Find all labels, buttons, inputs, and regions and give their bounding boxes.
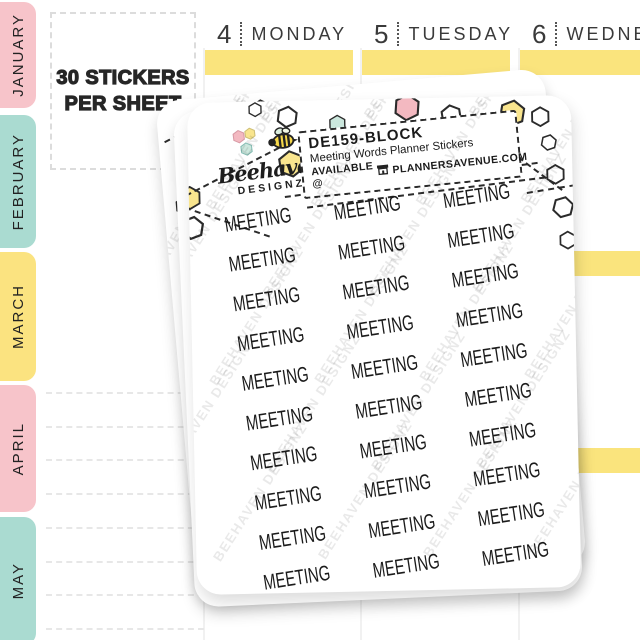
month-tab-label: JANUARY: [10, 13, 27, 97]
hexagon-icon: [540, 133, 558, 156]
ruled-line: [46, 594, 204, 596]
month-tab-may: MAY: [0, 517, 36, 640]
ruled-line: [46, 493, 204, 495]
day-header: 4MONDAY: [205, 18, 353, 50]
month-tab-label: MAY: [10, 562, 27, 599]
sticker-grid: MEETINGMEETINGMEETINGMEETINGMEETINGMEETI…: [201, 170, 572, 595]
ruled-line: [46, 628, 204, 630]
day-number: 5: [374, 19, 388, 50]
product-image: JANUARYFEBRUARYMARCHAPRILMAY 30 STICKERS…: [0, 0, 640, 640]
day-highlight-bar: [362, 50, 510, 75]
day-highlight-bar: [205, 50, 353, 75]
day-column-tuesday: 5TUESDAY: [362, 18, 510, 78]
day-name: TUESDAY: [408, 24, 513, 45]
day-header: 6WEDNESDAY: [520, 18, 640, 50]
month-tab-label: MARCH: [10, 284, 27, 349]
ruled-line: [46, 527, 204, 529]
storefront-icon: [376, 164, 390, 179]
hexagon-icon: [551, 195, 576, 224]
day-separator: [240, 22, 242, 46]
month-tab-january: JANUARY: [0, 2, 36, 108]
day-name: MONDAY: [251, 24, 347, 45]
ruled-line: [46, 561, 204, 563]
month-tab-label: FEBRUARY: [10, 133, 27, 230]
day-column-wednesday: 6WEDNESDAY: [520, 18, 640, 78]
day-separator: [555, 22, 557, 46]
day-number: 4: [217, 19, 231, 50]
month-tab-february: FEBRUARY: [0, 115, 36, 248]
ruled-line: [46, 426, 204, 428]
month-tab-label: APRIL: [10, 422, 27, 475]
month-tab-april: APRIL: [0, 385, 36, 512]
hexagon-icon: [529, 105, 552, 132]
month-tab-march: MARCH: [0, 252, 36, 381]
day-header: 5TUESDAY: [362, 18, 510, 50]
day-separator: [397, 22, 399, 46]
hexagon-icon: [247, 101, 263, 122]
day-number: 6: [532, 19, 546, 50]
sticker-sheet: Beehaven DESIGNZ DE159-BLOCK Meeting Wor…: [187, 95, 581, 595]
day-name: WEDNESDAY: [566, 24, 640, 45]
day-highlight-bar: [520, 50, 640, 75]
ruled-line: [46, 459, 204, 461]
day-column-monday: 4MONDAY: [205, 18, 353, 78]
